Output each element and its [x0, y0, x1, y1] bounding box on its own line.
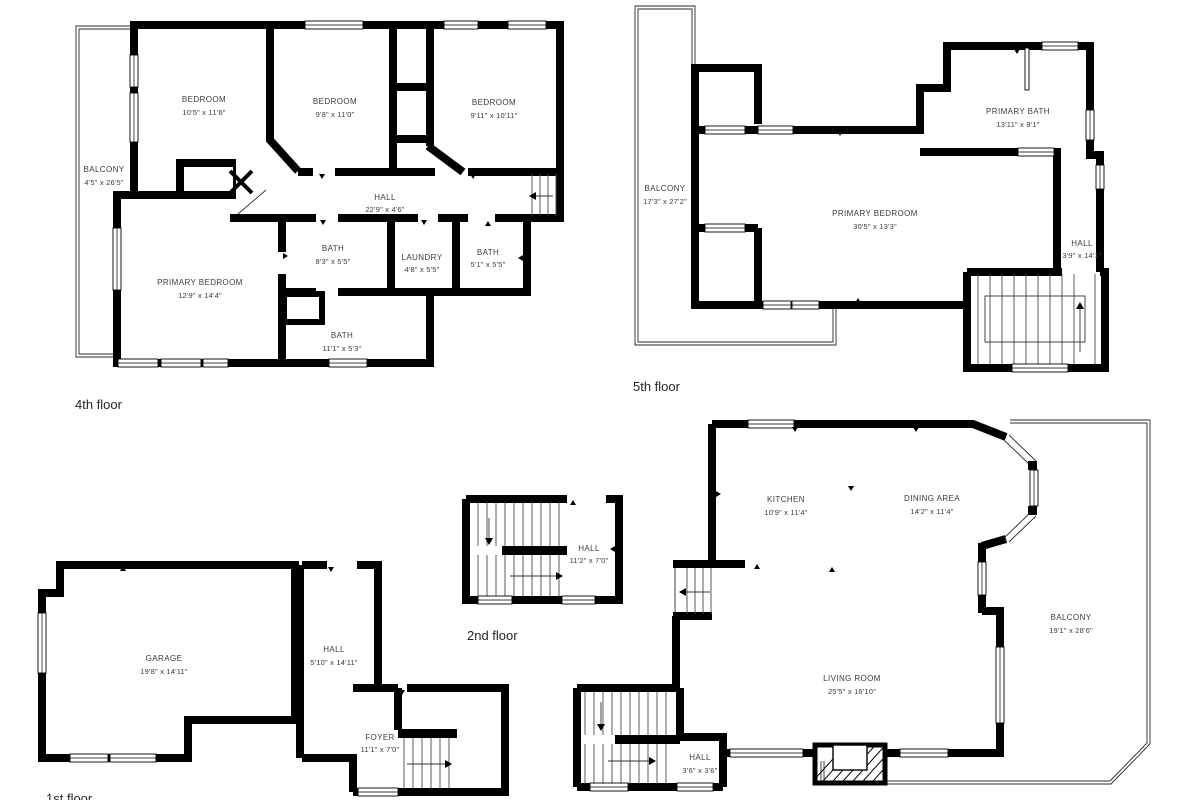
room-dims-balcony: 19'1" x 28'6" [1049, 626, 1093, 635]
room-name-hall: HALL [578, 544, 600, 553]
balcony-outline [635, 6, 836, 345]
room-dims-laundry: 4'8" x 5'5" [405, 265, 440, 274]
room-dims-kitchen: 10'9" x 11'4" [764, 508, 807, 517]
bay-windows [1004, 435, 1038, 542]
stair-direction-arrow [649, 757, 656, 765]
room-dims-balcony: 4'5" x 26'5" [84, 178, 123, 187]
room-dims-bedroom1: 10'5" x 11'6" [182, 108, 225, 117]
room-dims-dining: 14'2" x 11'4" [910, 507, 953, 516]
staircase [478, 502, 567, 596]
floorplan-sheet: BEDROOM 10'5" x 11'6" BEDROOM 9'8" x 11'… [0, 0, 1200, 800]
room-name-living: LIVING ROOM [823, 674, 881, 683]
walls [695, 46, 1105, 368]
room-dims-bedroom3: 9'11" x 10'11" [471, 111, 518, 120]
room-dims-hall: 22'9" x 4'6" [365, 205, 404, 214]
floor-label-4th: 4th floor [75, 397, 123, 412]
room-dims-foyer: 11'1" x 7'0" [361, 745, 400, 754]
room-dims-primary-bedroom: 12'9" x 14'4" [178, 291, 222, 300]
room-name-primary-bedroom: PRIMARY BEDROOM [157, 278, 243, 287]
room-name-primary-bedroom: PRIMARY BEDROOM [832, 209, 918, 218]
room-dims-hall: 5'10" x 14'11" [310, 658, 358, 667]
floor-plan-4th: BEDROOM 10'5" x 11'6" BEDROOM 9'8" x 11'… [75, 21, 560, 412]
room-name-dining: DINING AREA [904, 494, 960, 503]
staircase [398, 729, 457, 788]
walls [577, 424, 1006, 787]
stair-direction-arrow [445, 760, 452, 768]
room-name-kitchen: KITCHEN [767, 495, 805, 504]
stair-direction-arrow [597, 724, 605, 731]
room-dims-bath2: 5'1" x 5'5" [471, 260, 506, 269]
room-dims-bedroom2: 9'8" x 11'0" [316, 110, 355, 119]
room-labels: HALL 11'2" x 7'0" [570, 544, 609, 565]
room-name-bedroom3: BEDROOM [472, 98, 516, 107]
floor-plan-1st: GARAGE 19'8" x 14'11" HALL 5'10" x 14'11… [38, 565, 505, 800]
floor-plan-3rd: KITCHEN 10'9" x 11'4" DINING AREA 14'2" … [577, 420, 1150, 791]
room-dims-primary-bath: 13'11" x 8'1" [996, 120, 1039, 129]
room-dims-hall: 3'6" x 3'6" [683, 766, 718, 775]
room-name-hall: HALL [323, 645, 345, 654]
room-labels: KITCHEN 10'9" x 11'4" DINING AREA 14'2" … [683, 494, 1094, 775]
room-dims-hall: 3'9" x 14'1" [1062, 251, 1101, 260]
room-name-laundry: LAUNDRY [402, 253, 443, 262]
floor-label-1st: 1st floor [46, 791, 93, 800]
floor-label-2nd: 2nd floor [467, 628, 518, 643]
room-name-balcony: BALCONY [644, 184, 685, 193]
room-name-balcony: BALCONY [1050, 613, 1091, 622]
room-name-foyer: FOYER [365, 733, 395, 742]
floor-label-5th: 5th floor [633, 379, 681, 394]
staircase [978, 274, 1095, 364]
room-dims-hall: 11'2" x 7'0" [570, 556, 609, 565]
room-name-bedroom2: BEDROOM [313, 97, 357, 106]
stair-direction-arrow [1076, 302, 1084, 309]
room-name-bedroom1: BEDROOM [182, 95, 226, 104]
room-name-balcony: BALCONY [83, 165, 124, 174]
room-dims-primary-bedroom: 30'5" x 13'3" [853, 222, 897, 231]
staircase-lower [585, 692, 680, 784]
room-name-hall: HALL [1071, 239, 1093, 248]
shower-divider [1025, 48, 1029, 90]
room-dims-bath1: 8'3" x 5'5" [316, 257, 351, 266]
room-name-hall: HALL [374, 193, 396, 202]
room-name-bath1: BATH [322, 244, 344, 253]
room-dims-balcony: 17'3" x 27'2" [643, 197, 687, 206]
room-dims-garage: 19'8" x 14'11" [140, 667, 188, 676]
floor-plan-5th: BALCONY 17'3" x 27'2" PRIMARY BEDROOM 30… [633, 6, 1105, 394]
room-name-bath2: BATH [477, 248, 499, 257]
room-name-garage: GARAGE [146, 654, 183, 663]
room-dims-living: 25'5" x 16'10" [828, 687, 876, 696]
room-name-bath3: BATH [331, 331, 353, 340]
stair-direction-arrow [679, 588, 686, 596]
room-dims-bath3: 11'1" x 5'3" [323, 344, 362, 353]
fireplace [805, 740, 920, 790]
stair-direction-arrow [485, 538, 493, 545]
windows [705, 42, 1104, 372]
closet [180, 163, 232, 195]
stair-direction-arrow [556, 572, 563, 580]
room-name-primary-bath: PRIMARY BATH [986, 107, 1050, 116]
staircase-upper [675, 568, 711, 614]
floor-plan-2nd: HALL 11'2" x 7'0" 2nd floor [466, 499, 619, 643]
room-name-hall: HALL [689, 753, 711, 762]
door-markers [716, 427, 919, 572]
floorplan-canvas: BEDROOM 10'5" x 11'6" BEDROOM 9'8" x 11'… [0, 0, 1200, 800]
